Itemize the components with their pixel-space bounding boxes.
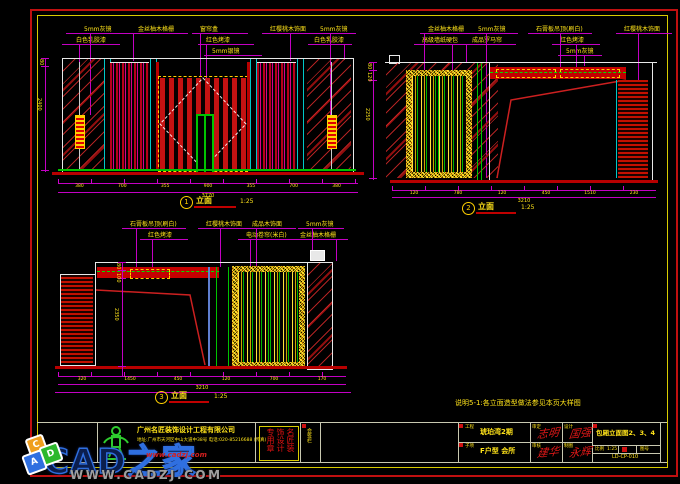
material-label: 红色烤漆 — [148, 232, 172, 239]
view-marker-2: 2 — [462, 202, 475, 215]
material-label: 5mm银镜 — [212, 48, 240, 55]
dim-value: 2400 — [36, 98, 41, 111]
dim-values: 1207801204501510230 — [392, 191, 656, 196]
cell-mark — [459, 443, 463, 447]
view-scale: 1:25 — [240, 198, 253, 205]
view-title-underline — [194, 206, 236, 208]
dim-tick — [118, 366, 126, 367]
material-label: 石膏板吊顶(刷白) — [536, 26, 583, 33]
material-label: 5mm灰镜 — [306, 221, 334, 228]
wood-grain-panel — [618, 80, 648, 178]
titleblock-divider — [592, 423, 593, 462]
project-label: 子项 — [465, 444, 474, 449]
dim-values: 380700355900355700380 — [58, 184, 358, 189]
leader-line — [238, 239, 298, 240]
scale-value: 1:25 — [607, 447, 617, 452]
view-scale: 1:25 — [521, 204, 534, 211]
material-label: 电动卷帘(米白) — [246, 232, 287, 239]
floor-line — [390, 180, 658, 183]
material-label: 红樱桃木饰面 — [624, 26, 660, 33]
dim-total: 3210 — [58, 385, 346, 391]
leader-line — [133, 34, 134, 61]
view-title: 立面 — [196, 196, 212, 205]
view-marker-1: 1 — [180, 196, 193, 209]
leader-line — [140, 239, 188, 240]
ceiling-line — [385, 62, 657, 63]
door-frame-line — [228, 267, 229, 368]
dim-value: 2350 — [113, 308, 118, 321]
door-frame-line — [477, 63, 478, 180]
material-label: 红樱桃木饰面 — [270, 26, 306, 33]
dim-tick — [369, 178, 377, 179]
side-label: 会签栏 — [306, 428, 312, 443]
signature: 志明 — [536, 427, 560, 442]
material-label: 高级墙纸硬包 — [422, 37, 458, 44]
door-frame-line — [216, 267, 217, 368]
panel-frame-line — [438, 76, 439, 172]
door-handle-icon — [204, 114, 214, 174]
dim-tick — [41, 66, 49, 67]
leader-line — [312, 33, 356, 34]
dim-value: 100 — [115, 273, 120, 283]
dim-values: 3201450450120700170 — [58, 377, 346, 382]
material-label: 红色烤漆 — [560, 37, 584, 44]
dim-total-line — [55, 392, 351, 393]
ceiling-line — [95, 262, 331, 263]
cell-divider — [618, 445, 619, 453]
column-edge — [297, 59, 304, 170]
batten-panel-left — [110, 62, 149, 170]
view-title: 立面 — [478, 202, 494, 211]
leader-line — [464, 44, 516, 45]
leader-line — [204, 55, 262, 56]
material-label: 金丝柚木格栅 — [138, 26, 174, 33]
dim-tick — [41, 170, 49, 171]
signature: 国强 — [568, 427, 592, 442]
material-label: 5mm灰镜 — [84, 26, 112, 33]
watermark-url: WWW.CADZJ.COM — [70, 468, 223, 482]
cell-divider — [592, 445, 660, 446]
view-title: 立面 — [171, 391, 187, 400]
dim-value: 120 — [366, 72, 371, 82]
dim-value: 80 — [366, 63, 371, 69]
column-edge — [250, 59, 257, 171]
cell-mark — [459, 424, 463, 428]
leader-line — [470, 33, 518, 34]
door-frame-line — [481, 63, 482, 180]
project-subname: F户型 会所 — [480, 448, 515, 455]
scale-label: 比例 — [595, 447, 604, 452]
wood-grain-panel — [61, 275, 93, 363]
leader-line — [244, 228, 296, 229]
leader-line — [292, 239, 348, 240]
mirror-panel — [307, 262, 333, 370]
material-label: 5mm灰镜 — [320, 26, 348, 33]
signature: 建华 — [536, 446, 560, 461]
drawing-number: LD-CP-010 — [612, 455, 638, 460]
dim-value: 80 — [38, 59, 43, 65]
leader-line — [298, 228, 344, 229]
signature: 永辉 — [568, 446, 592, 461]
dim-line-vertical — [122, 262, 123, 376]
titleblock-divider — [660, 423, 661, 462]
material-label: 成品罗马帘 — [472, 37, 502, 44]
cell-divider — [530, 442, 592, 443]
cell-divider — [636, 445, 637, 453]
cell-mark — [622, 447, 627, 452]
titleblock-divider — [300, 423, 301, 462]
material-label: 窗帘盒 — [200, 26, 218, 33]
cad-sheet: 5mm灰镜 白色乳胶漆 金丝柚木格栅 窗帘盒 红色烤漆 5mm银镜 红樱桃木饰面… — [0, 0, 680, 484]
leader-line — [62, 44, 120, 45]
ceiling-band-box — [130, 269, 170, 279]
view-title-underline — [476, 212, 516, 214]
wall-lamp-icon — [75, 115, 85, 149]
material-label: 成品木饰面 — [252, 221, 282, 228]
view-marker-3: 3 — [155, 391, 168, 404]
leader-line — [66, 33, 130, 34]
panel-frame-line — [268, 272, 269, 362]
leader-line — [466, 45, 467, 63]
leader-line — [558, 55, 602, 56]
material-label: 红樱桃木饰面 — [206, 221, 242, 228]
dim-tick — [369, 70, 377, 71]
drawing-title: 包厢立面图2、3、4 — [596, 430, 655, 437]
material-label: 白色乳胶漆 — [76, 37, 106, 44]
sheet-note: 说明5-1:各立面造型做法参见本页大样图 — [455, 400, 581, 407]
wall-edge — [652, 62, 653, 180]
sheet-label: 图号 — [640, 447, 649, 452]
leader-line — [290, 34, 291, 61]
material-label: 5mm灰镜 — [478, 26, 506, 33]
titleblock-divider — [320, 423, 321, 462]
view-scale: 1:25 — [214, 393, 227, 400]
watermark-url-small: www.cadzj.com — [146, 451, 207, 459]
dim-value: 2250 — [364, 108, 369, 121]
detail-marker — [310, 250, 325, 261]
material-label: 5mm灰镜 — [566, 48, 594, 55]
floor-line — [52, 172, 364, 175]
material-label: 红色烤漆 — [206, 37, 230, 44]
floor-line — [55, 366, 347, 369]
leader-line — [616, 33, 672, 34]
leader-line — [130, 33, 188, 34]
sweep-line — [94, 282, 212, 368]
material-label: 金丝柚木格栅 — [300, 232, 336, 239]
stone-panel-slats — [412, 76, 466, 172]
panel-edge — [208, 267, 210, 368]
company-name: 广州名匠装饰设计工程有限公司 — [137, 427, 235, 434]
batten-panel-right — [257, 62, 296, 170]
project-label: 工程 — [465, 425, 474, 430]
dim-line-vertical — [45, 58, 46, 172]
dim-value: 80 — [115, 263, 120, 269]
stamp-seal: 名匠装饰设计专用章 — [262, 428, 295, 458]
material-label: 石膏板吊顶(刷白) — [130, 221, 177, 228]
cell-divider — [458, 442, 530, 443]
dim-tick — [118, 270, 126, 271]
panel-edge — [616, 80, 617, 178]
material-label: 金丝柚木格栅 — [428, 26, 464, 33]
leader-line — [122, 228, 186, 229]
base-line — [58, 169, 356, 171]
material-label: 白色乳胶漆 — [314, 37, 344, 44]
cell-mark — [593, 424, 597, 428]
project-name: 琥珀湾2期 — [480, 429, 513, 436]
wall-lamp-icon — [327, 115, 337, 149]
view-title-underline — [169, 401, 209, 403]
leader-line — [336, 240, 337, 261]
titleblock-top-line — [37, 422, 667, 423]
